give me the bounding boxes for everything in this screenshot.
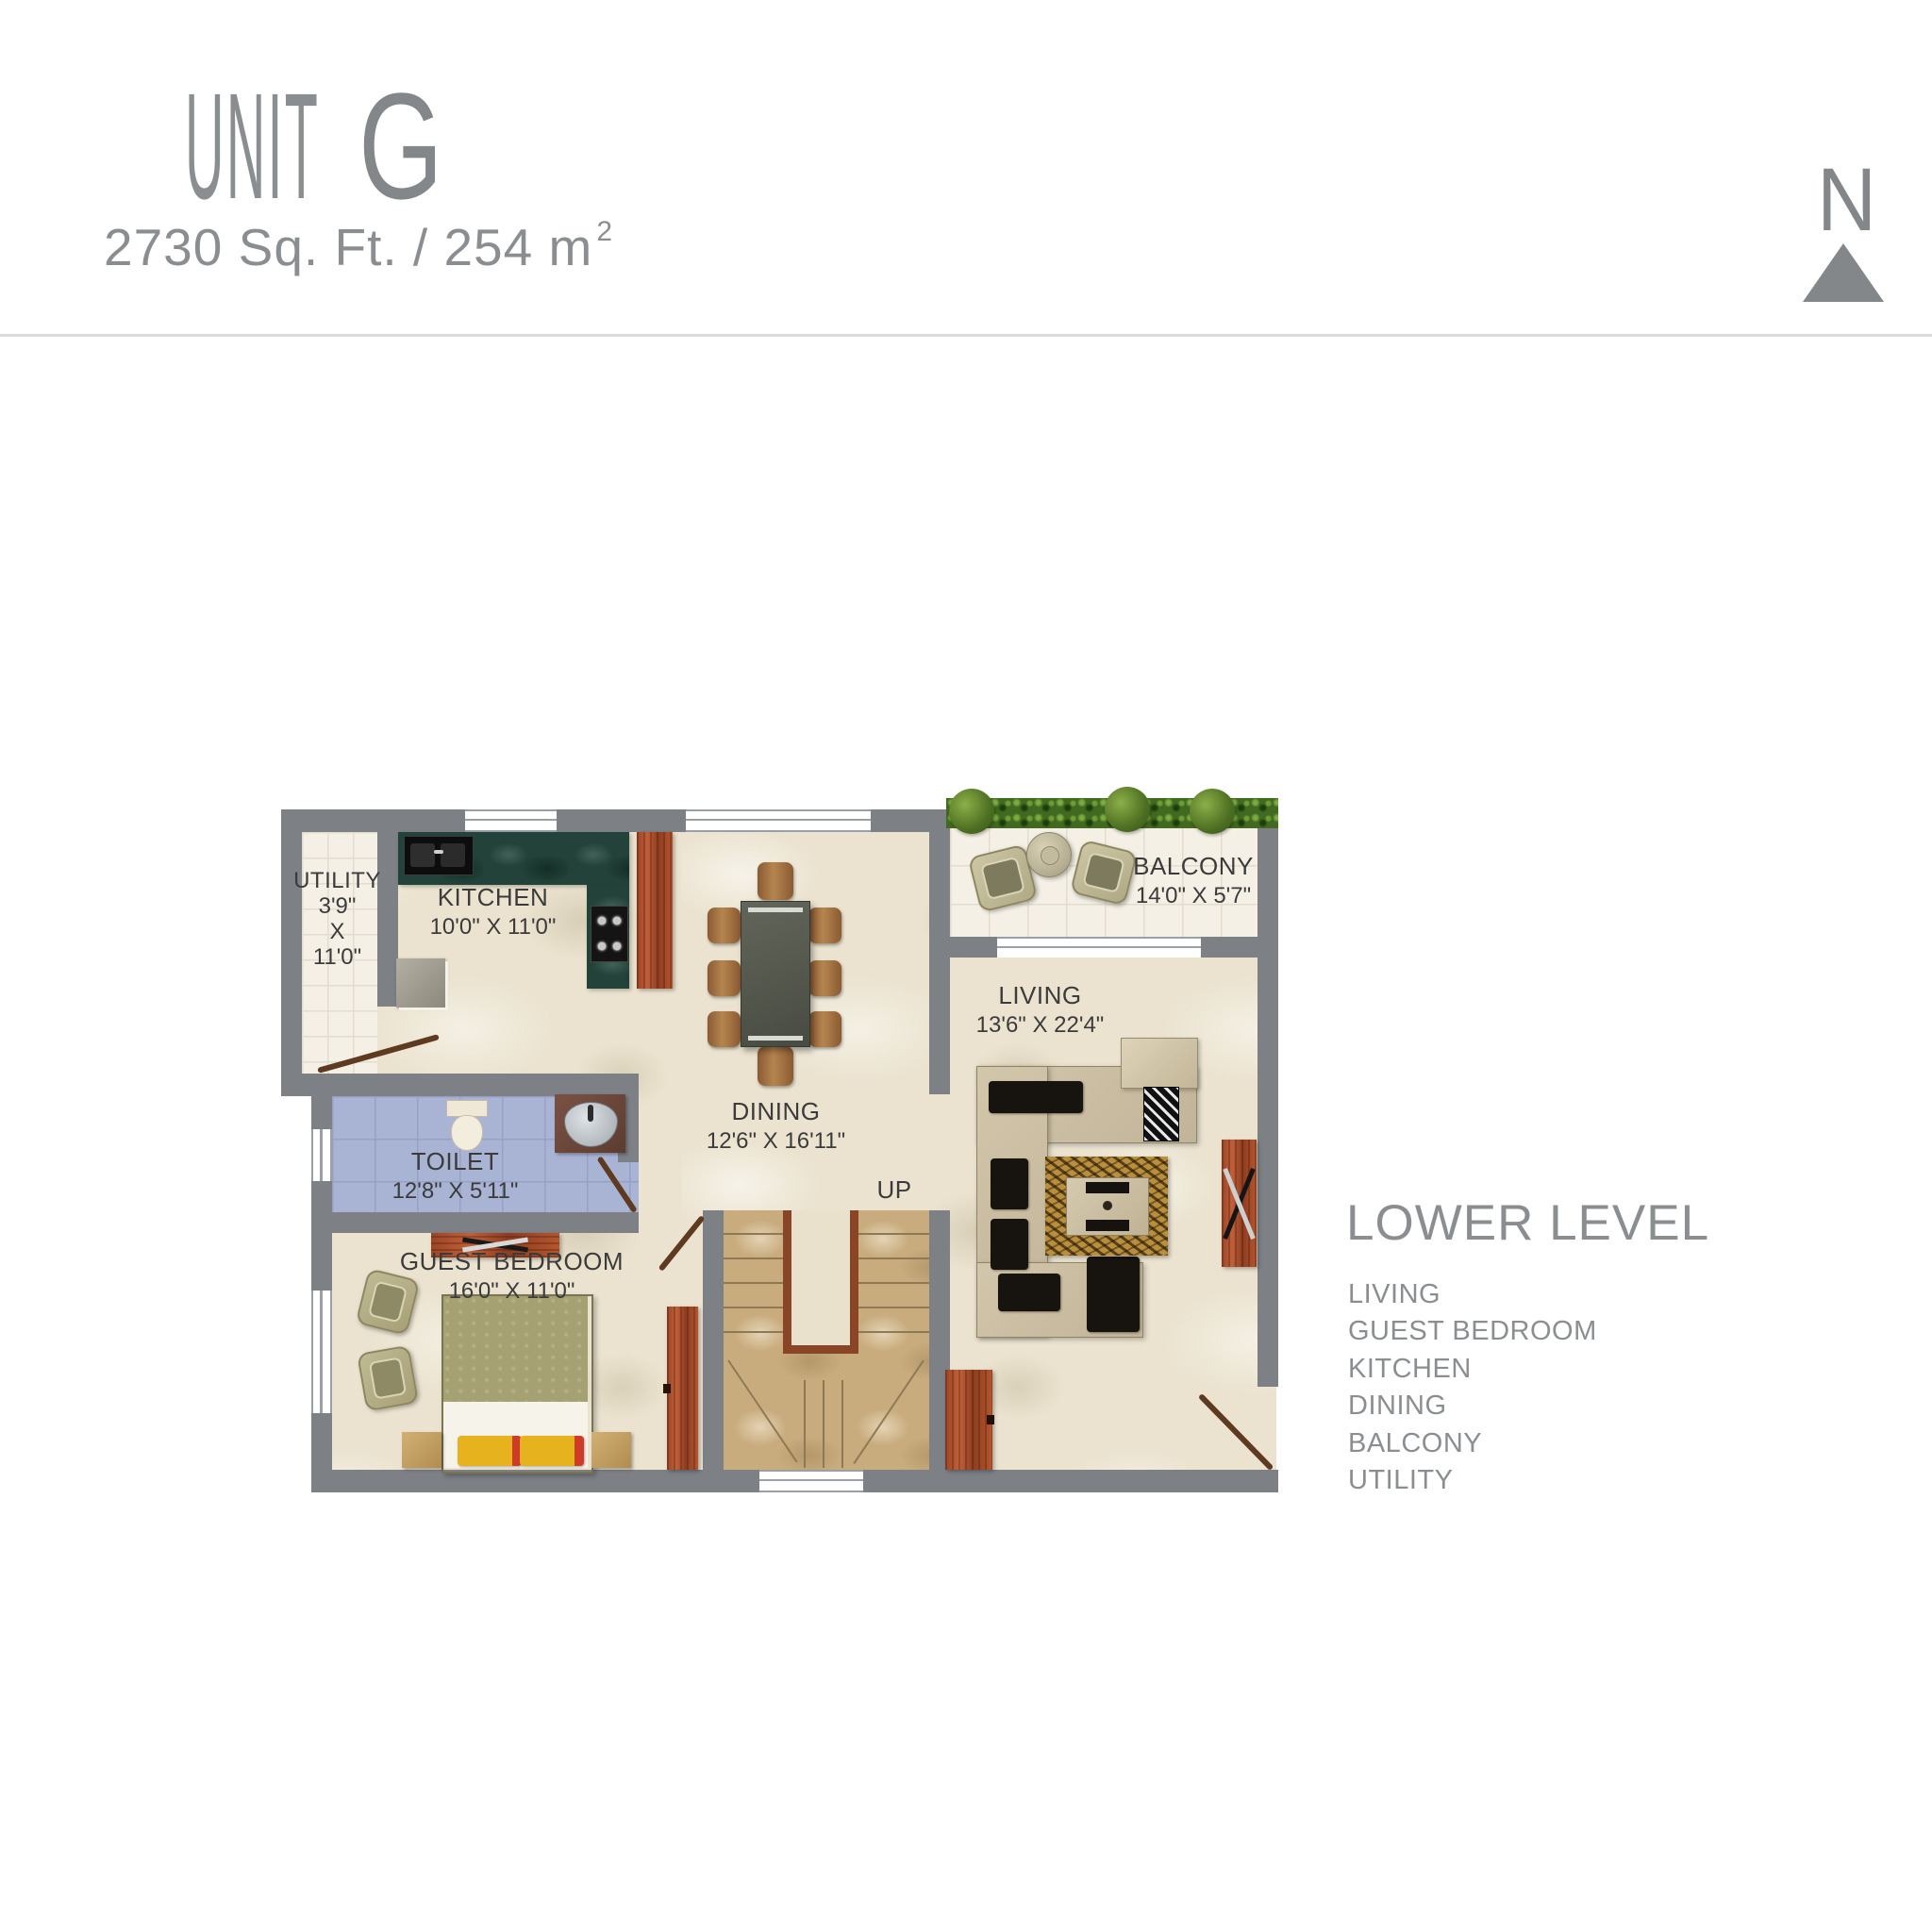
table-decor [1086, 1182, 1129, 1193]
room-dims: 10'0" X 11'0" [401, 912, 585, 941]
north-letter: N [1817, 156, 1876, 245]
living-balcony-window [997, 937, 1201, 958]
stair-winder-line [853, 1359, 924, 1464]
room-dims: 12'8" X 5'11" [358, 1176, 552, 1206]
table-runner [748, 908, 803, 912]
sofa-cushion [998, 1274, 1060, 1311]
level-room-item: KITCHEN [1348, 1354, 1472, 1385]
dining-chair [708, 960, 741, 996]
toilet-bowl [451, 1115, 483, 1151]
label-dining: DINING 12'6" X 16'11" [679, 1097, 873, 1156]
label-toilet: TOILET 12'8" X 5'11" [358, 1147, 552, 1206]
label-utility: UTILITY 3'9" X 11'0" [288, 868, 387, 970]
sink-basin [441, 843, 465, 867]
north-arrow-icon [1803, 243, 1884, 302]
wall-dining-living [929, 809, 950, 1094]
area-superscript: 2 [596, 216, 613, 247]
wall-top-mid [557, 809, 686, 832]
toilet-window [311, 1129, 332, 1181]
area-rug [1045, 1157, 1168, 1256]
tree-icon [949, 789, 994, 834]
level-room-item: GUEST BEDROOM [1348, 1316, 1597, 1347]
room-name: BALCONY [1094, 852, 1292, 881]
wall-right-living [1257, 937, 1278, 1387]
table-decor [1103, 1201, 1112, 1210]
chair-seat [369, 1357, 407, 1399]
dining-chair [808, 960, 841, 996]
stove [591, 906, 628, 962]
sofa-side-table [1121, 1038, 1198, 1089]
wall-left-lower-a [311, 1096, 332, 1129]
wardrobe-handle-icon [663, 1384, 671, 1393]
dining-window [686, 809, 871, 832]
wall-balcony-bottom-a [950, 937, 997, 958]
patterned-cushion [1143, 1087, 1179, 1141]
room-dims: 12'6" X 16'11" [679, 1126, 873, 1156]
page-subtitle: 2730 Sq. Ft. / 254 m2 [104, 219, 613, 276]
wall-bottom-right [863, 1470, 1278, 1492]
dining-chair [758, 1046, 793, 1086]
dining-chair [708, 1011, 741, 1047]
dining-chair [758, 862, 793, 900]
kitchen-window [465, 809, 557, 832]
refrigerator [396, 958, 445, 1008]
bed-blanket [443, 1296, 588, 1402]
label-guest-bedroom: GUEST BEDROOM 16'0" X 11'0" [391, 1247, 632, 1306]
level-title: LOWER LEVEL [1346, 1194, 1709, 1252]
stair-winder-line [841, 1380, 843, 1468]
wall-left-lower-b [311, 1181, 332, 1291]
hall-cabinet [945, 1370, 992, 1470]
room-dim: 3'9" [288, 893, 387, 919]
kitchen-tall-unit [637, 832, 673, 989]
sofa-cushion [991, 1219, 1028, 1270]
sofa-cushion [989, 1081, 1083, 1113]
page-title-unit-letter: G [358, 71, 443, 222]
bed-pillow [458, 1436, 522, 1466]
nightstand [402, 1432, 441, 1468]
stair-winder-line [823, 1380, 824, 1468]
tv-console [1222, 1140, 1257, 1267]
balcony-table [1026, 832, 1072, 877]
room-dim: 11'0" [288, 944, 387, 970]
wall-top-left [281, 809, 465, 832]
level-room-item: DINING [1348, 1391, 1447, 1422]
stair-winder-line [804, 1380, 806, 1468]
floorplan-page: { "header": { "title_word": "UNIT", "tit… [0, 0, 1932, 1932]
stair-railing [783, 1210, 858, 1354]
wardrobe [667, 1307, 698, 1470]
stair-flight-right [854, 1210, 929, 1352]
label-stairs-up: UP [866, 1175, 923, 1205]
nightstand [591, 1432, 631, 1468]
header-divider [0, 334, 1932, 337]
bed [441, 1294, 593, 1474]
wall-stairs-left [703, 1210, 724, 1470]
room-name: DINING [679, 1097, 873, 1126]
sink-basin [410, 843, 435, 867]
outside-notch [285, 1096, 311, 1492]
wall-toilet-bottom [311, 1212, 639, 1233]
area-text: 2730 Sq. Ft. / 254 m [104, 218, 592, 276]
level-room-item: BALCONY [1348, 1428, 1482, 1459]
page-title: UNIT [185, 71, 320, 222]
dining-table [741, 901, 810, 1047]
room-dims: 13'6" X 22'4" [943, 1010, 1137, 1040]
room-name: GUEST BEDROOM [391, 1247, 632, 1276]
level-room-item: LIVING [1348, 1279, 1441, 1310]
tree-icon [1190, 789, 1235, 834]
bedroom-window [311, 1291, 332, 1413]
kitchen-sink [404, 836, 474, 875]
dining-chair [808, 908, 841, 943]
stairs-window [759, 1470, 863, 1492]
bedroom-chair [357, 1345, 419, 1412]
room-dims: 14'0" X 5'7" [1094, 881, 1292, 910]
label-balcony: BALCONY 14'0" X 5'7" [1094, 852, 1292, 910]
table-runner [748, 1036, 803, 1041]
dining-chair [708, 908, 741, 943]
room-name: LIVING [943, 981, 1137, 1010]
basin-faucet [588, 1105, 593, 1122]
wall-balcony-bottom-b [1201, 937, 1257, 958]
coffee-table [1066, 1177, 1149, 1236]
bed-pillow [520, 1436, 584, 1466]
dining-chair [808, 1011, 841, 1047]
room-name: TOILET [358, 1147, 552, 1176]
label-kitchen: KITCHEN 10'0" X 11'0" [401, 883, 585, 941]
room-dims: 16'0" X 11'0" [391, 1276, 632, 1306]
stair-flight-left [724, 1210, 783, 1352]
chair-seat [980, 857, 1025, 901]
wall-utility-bottom [281, 1074, 639, 1096]
sofa-cushion [991, 1158, 1028, 1209]
table-decor [1086, 1220, 1129, 1231]
room-name: UTILITY [288, 868, 387, 893]
ottoman [1087, 1257, 1140, 1332]
room-dim: X [288, 919, 387, 944]
stair-winder-line [727, 1359, 797, 1462]
staircase [724, 1210, 929, 1470]
level-room-item: UTILITY [1348, 1465, 1453, 1496]
table-center [1041, 846, 1059, 865]
label-living: LIVING 13'6" X 22'4" [943, 981, 1137, 1040]
room-name: KITCHEN [401, 883, 585, 912]
tree-icon [1105, 787, 1150, 832]
sink-faucet [434, 850, 443, 854]
cabinet-handle-icon [987, 1415, 994, 1424]
